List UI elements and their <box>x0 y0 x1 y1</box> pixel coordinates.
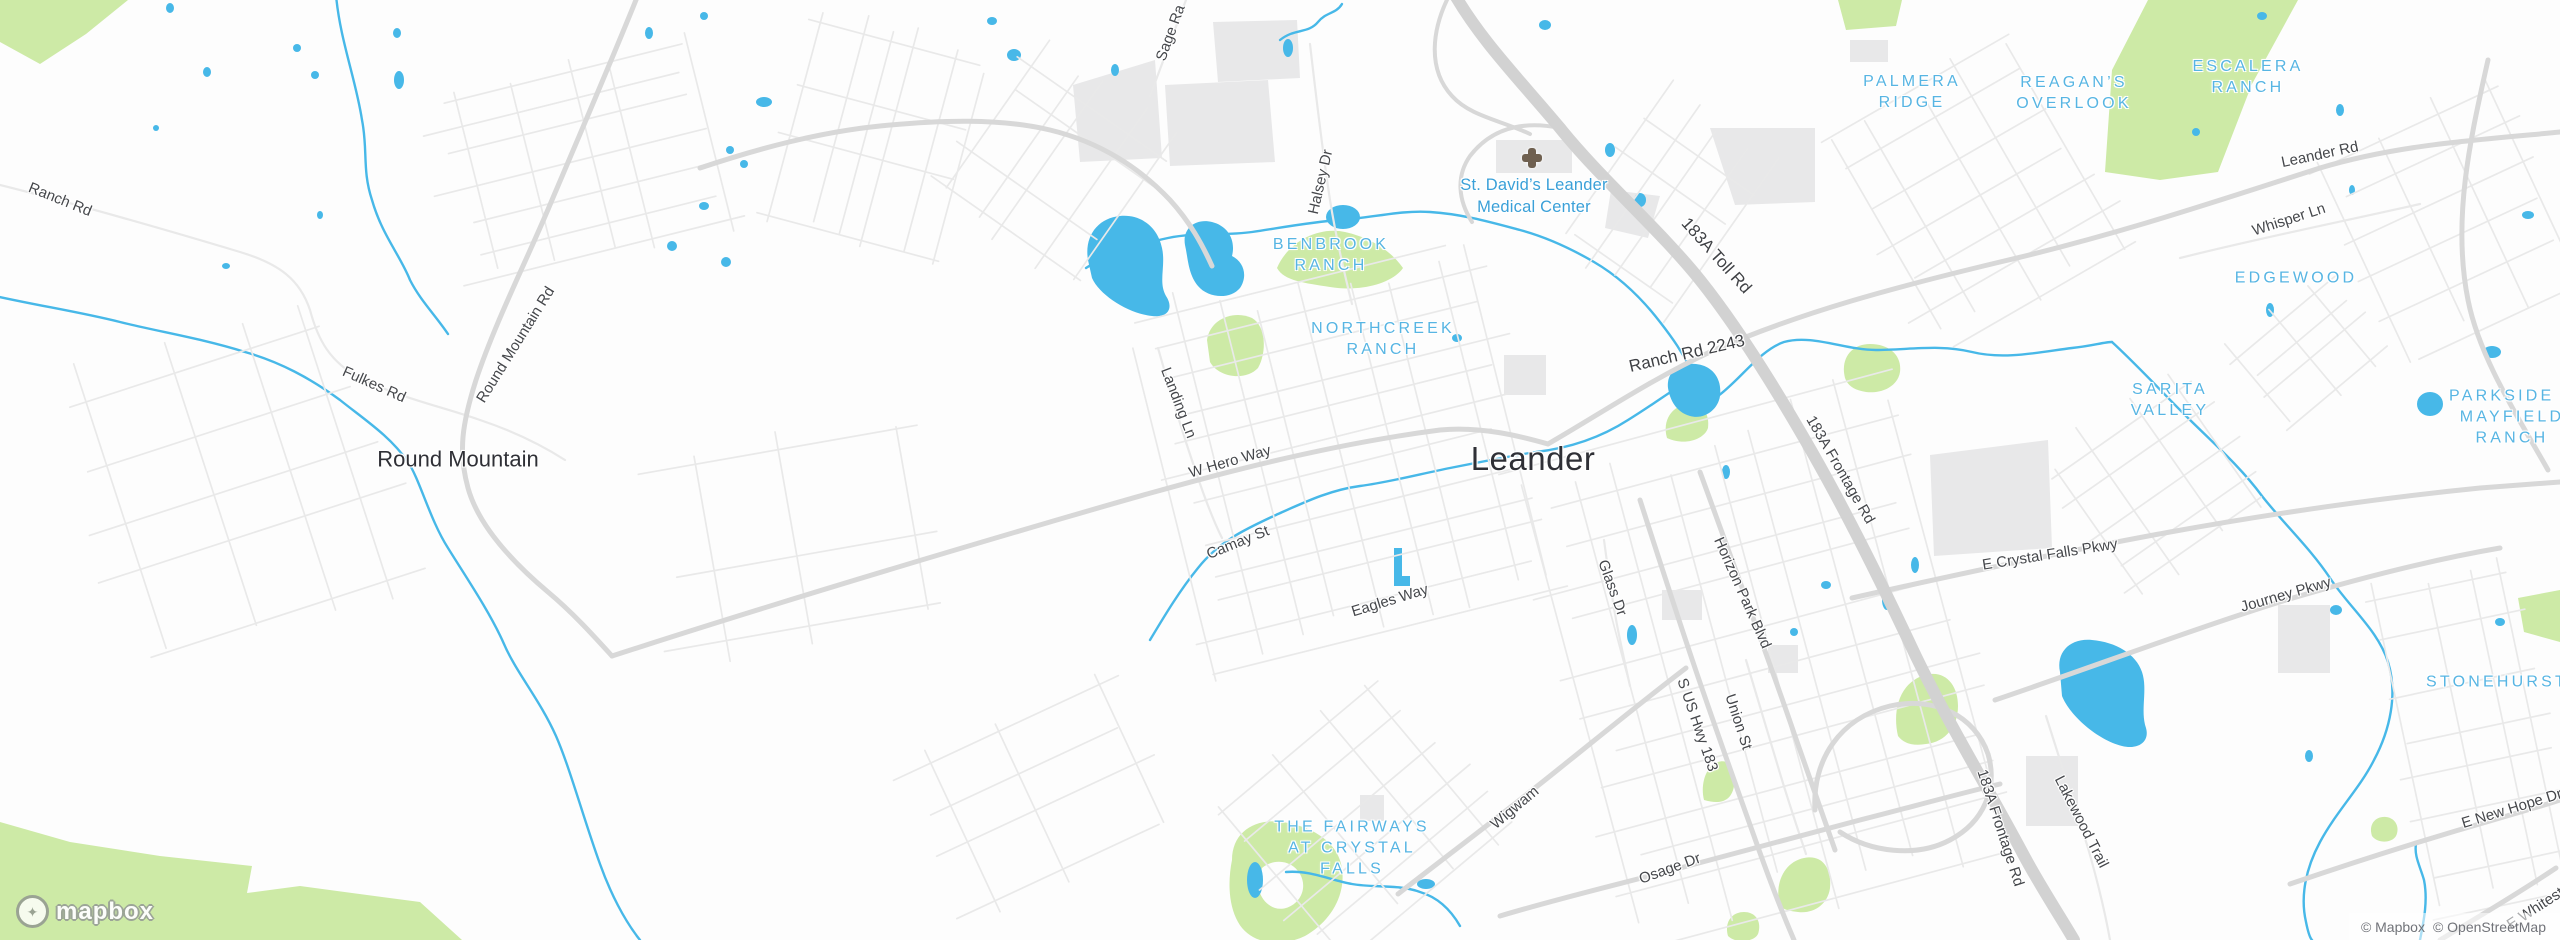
hospital-cross-icon <box>1522 148 1542 168</box>
attribution-mapbox-link[interactable]: © Mapbox <box>2361 919 2425 935</box>
label-neighborhood-palmera-ridge: PALMERARIDGE <box>1863 71 1961 113</box>
label-neighborhood-sarita-valley: SARITAVALLEY <box>2131 379 2210 421</box>
attribution-osm-link[interactable]: © OpenStreetMap <box>2433 919 2546 935</box>
label-neighborhood-parkside-a-mayfield-ranch: PARKSIDE AMAYFIELDRANCH <box>2449 385 2560 448</box>
map-canvas[interactable]: LeanderRound MountainBENBROOKRANCHNORTHC… <box>0 0 2560 940</box>
mapbox-wordmark: mapbox <box>56 898 154 926</box>
label-city-leander: Leander <box>1471 437 1596 481</box>
mapbox-logo[interactable]: ✦ mapbox <box>16 895 154 928</box>
label-neighborhood-northcreek-ranch: NORTHCREEKRANCH <box>1311 318 1455 360</box>
label-city-round-mountain: Round Mountain <box>377 444 538 473</box>
label-neighborhood-the-fairways-at-crystal-falls: THE FAIRWAYSAT CRYSTALFALLS <box>1274 816 1429 879</box>
label-neighborhood-escalera-ranch: ESCALERARANCH <box>2193 56 2304 98</box>
label-neighborhood-stonehurst: STONEHURST <box>2426 671 2560 692</box>
attribution-bar: © Mapbox © OpenStreetMap <box>2349 913 2560 940</box>
label-neighborhood-reagan-s-overlook: REAGAN’SOVERLOOK <box>2016 72 2131 114</box>
label-poi-st-david-s-leander-medical-center: St. David’s LeanderMedical Center <box>1460 175 1608 219</box>
label-neighborhood-edgewood: EDGEWOOD <box>2235 267 2358 288</box>
mapbox-pin-icon: ✦ <box>16 895 49 928</box>
label-neighborhood-benbrook-ranch: BENBROOKRANCH <box>1273 234 1389 276</box>
